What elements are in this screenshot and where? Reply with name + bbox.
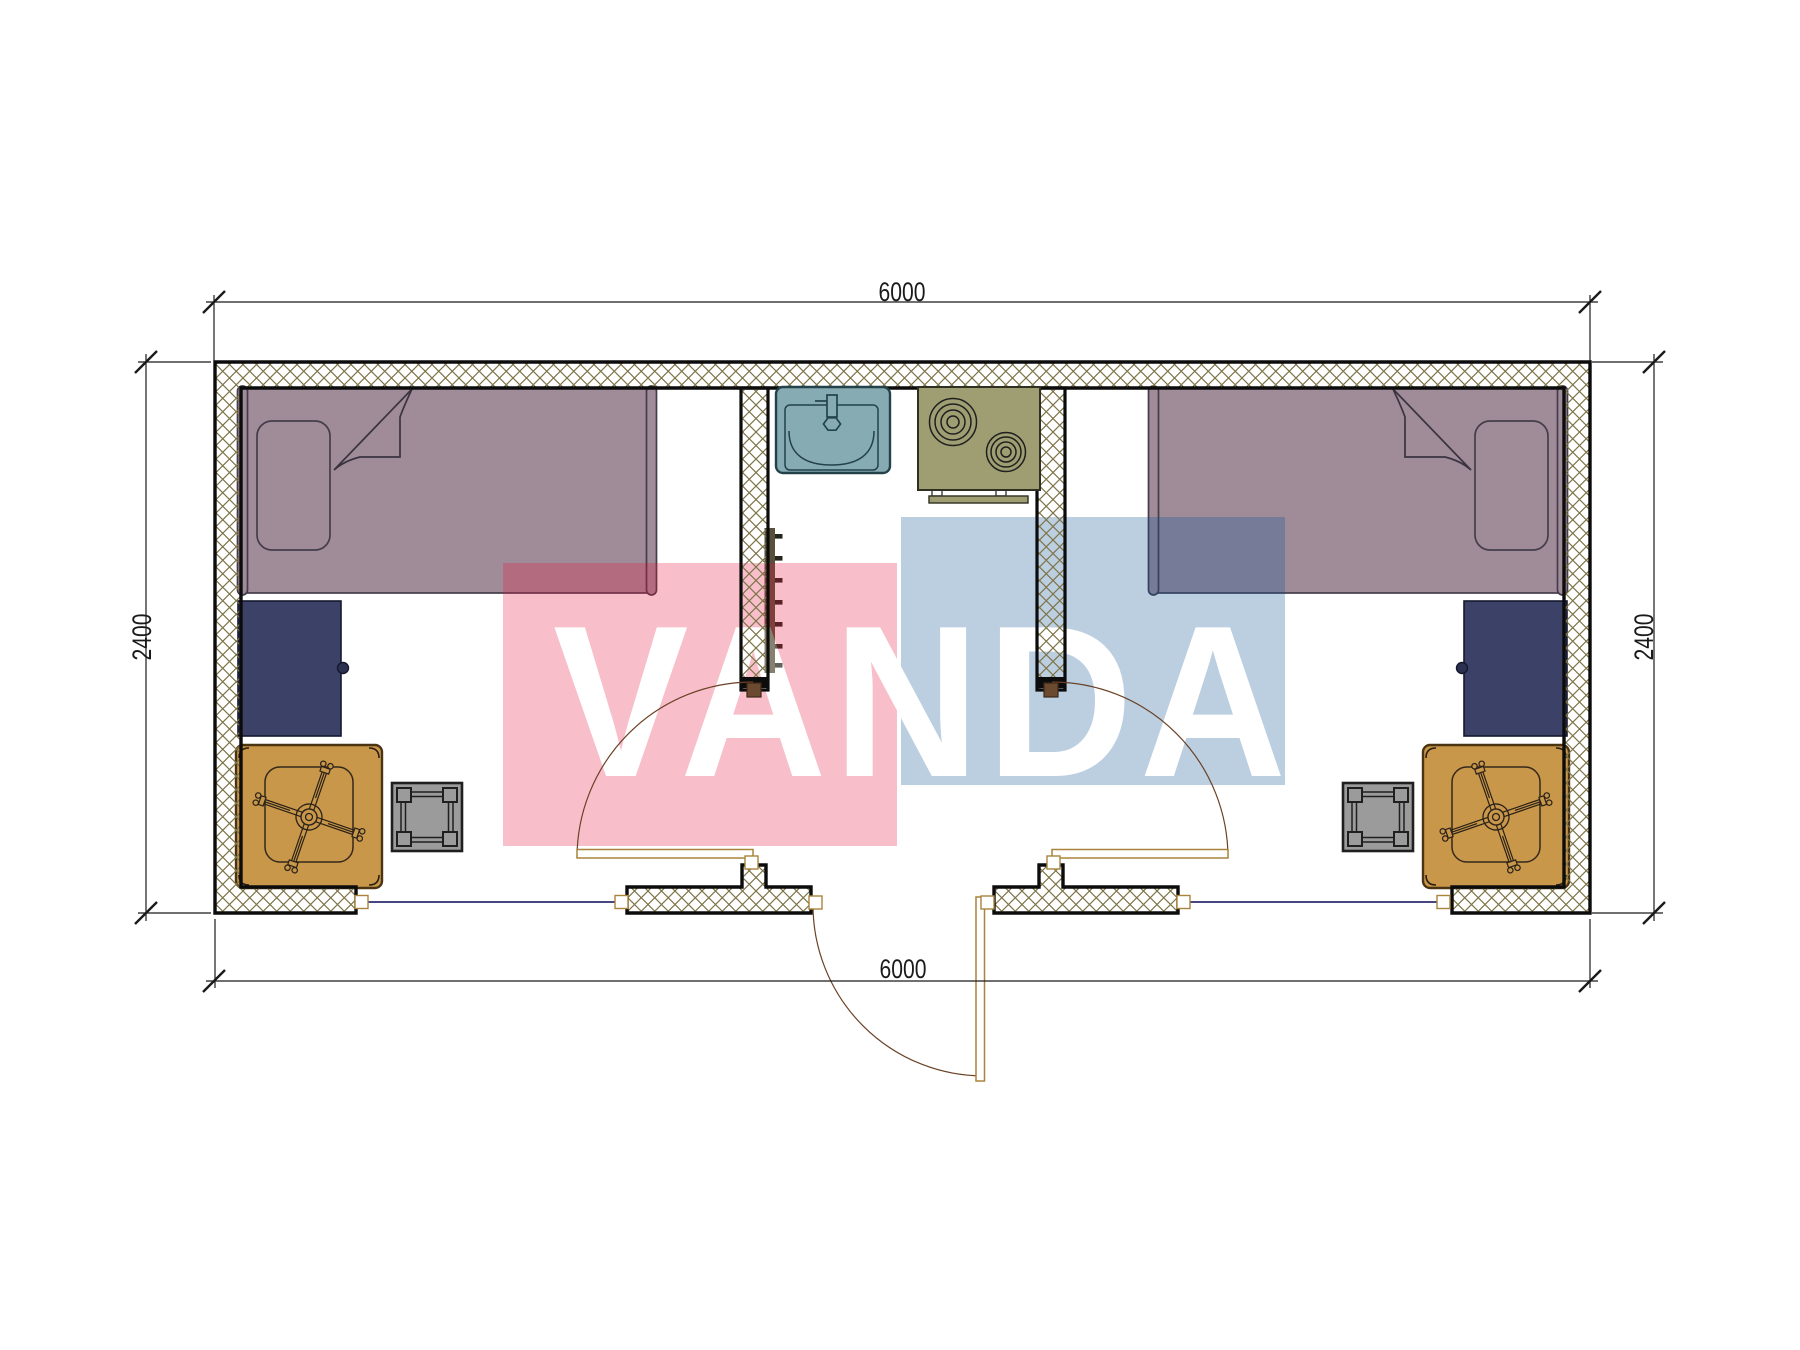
svg-text:6000: 6000	[880, 954, 927, 984]
svg-text:2400: 2400	[1629, 614, 1659, 661]
svg-text:6000: 6000	[879, 277, 926, 307]
svg-text:2400: 2400	[127, 614, 157, 661]
